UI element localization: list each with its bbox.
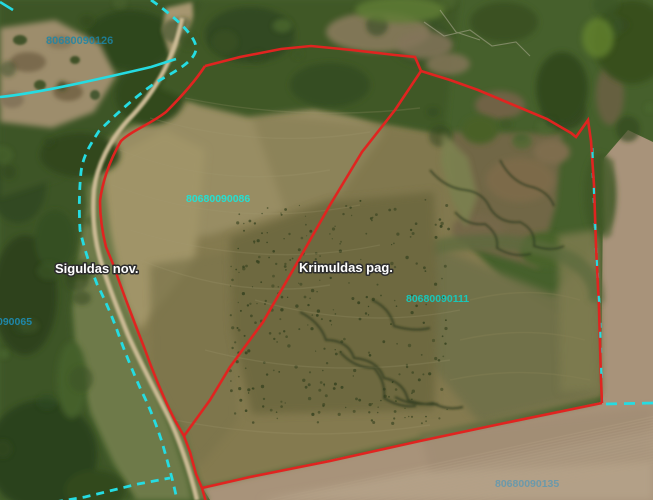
svg-text:Krimuldas pag.: Krimuldas pag. bbox=[299, 260, 393, 275]
svg-text:80680090086: 80680090086 bbox=[186, 193, 250, 205]
svg-text:Siguldas nov.: Siguldas nov. bbox=[55, 261, 139, 276]
svg-text:090065: 090065 bbox=[0, 316, 32, 328]
svg-text:80680090135: 80680090135 bbox=[495, 478, 559, 490]
svg-text:80680090111: 80680090111 bbox=[406, 293, 469, 305]
svg-text:80680090126: 80680090126 bbox=[46, 35, 113, 47]
